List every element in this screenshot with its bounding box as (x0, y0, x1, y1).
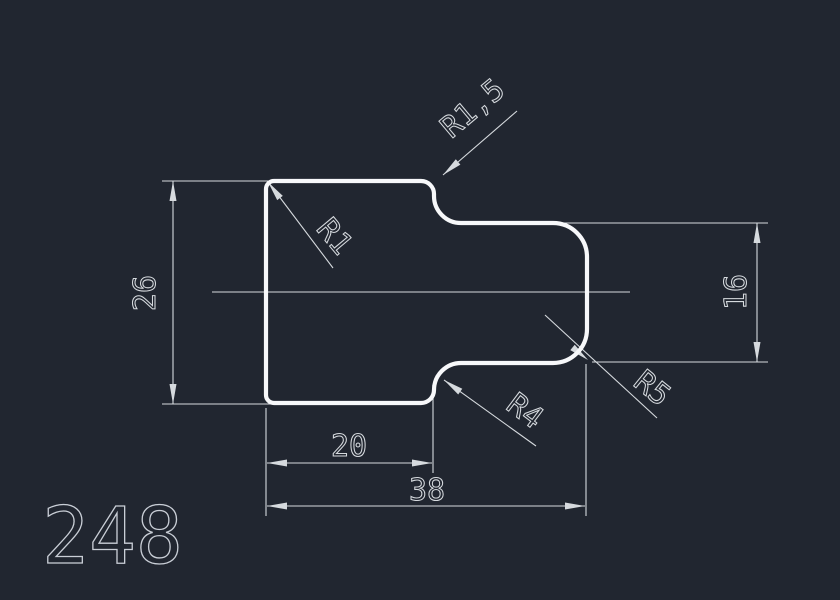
dim-text-16: 16 (719, 274, 754, 310)
dim-text-20: 20 (331, 429, 367, 464)
dim-text-38: 38 (409, 473, 445, 508)
dim-text-26: 26 (128, 275, 163, 311)
cad-drawing-viewport: 26 16 20 38 R1 R1,5 R4 R5 248 (0, 0, 840, 600)
part-number-label: 248 (42, 492, 183, 582)
cad-drawing-canvas: 26 16 20 38 R1 R1,5 R4 R5 248 (0, 0, 840, 600)
